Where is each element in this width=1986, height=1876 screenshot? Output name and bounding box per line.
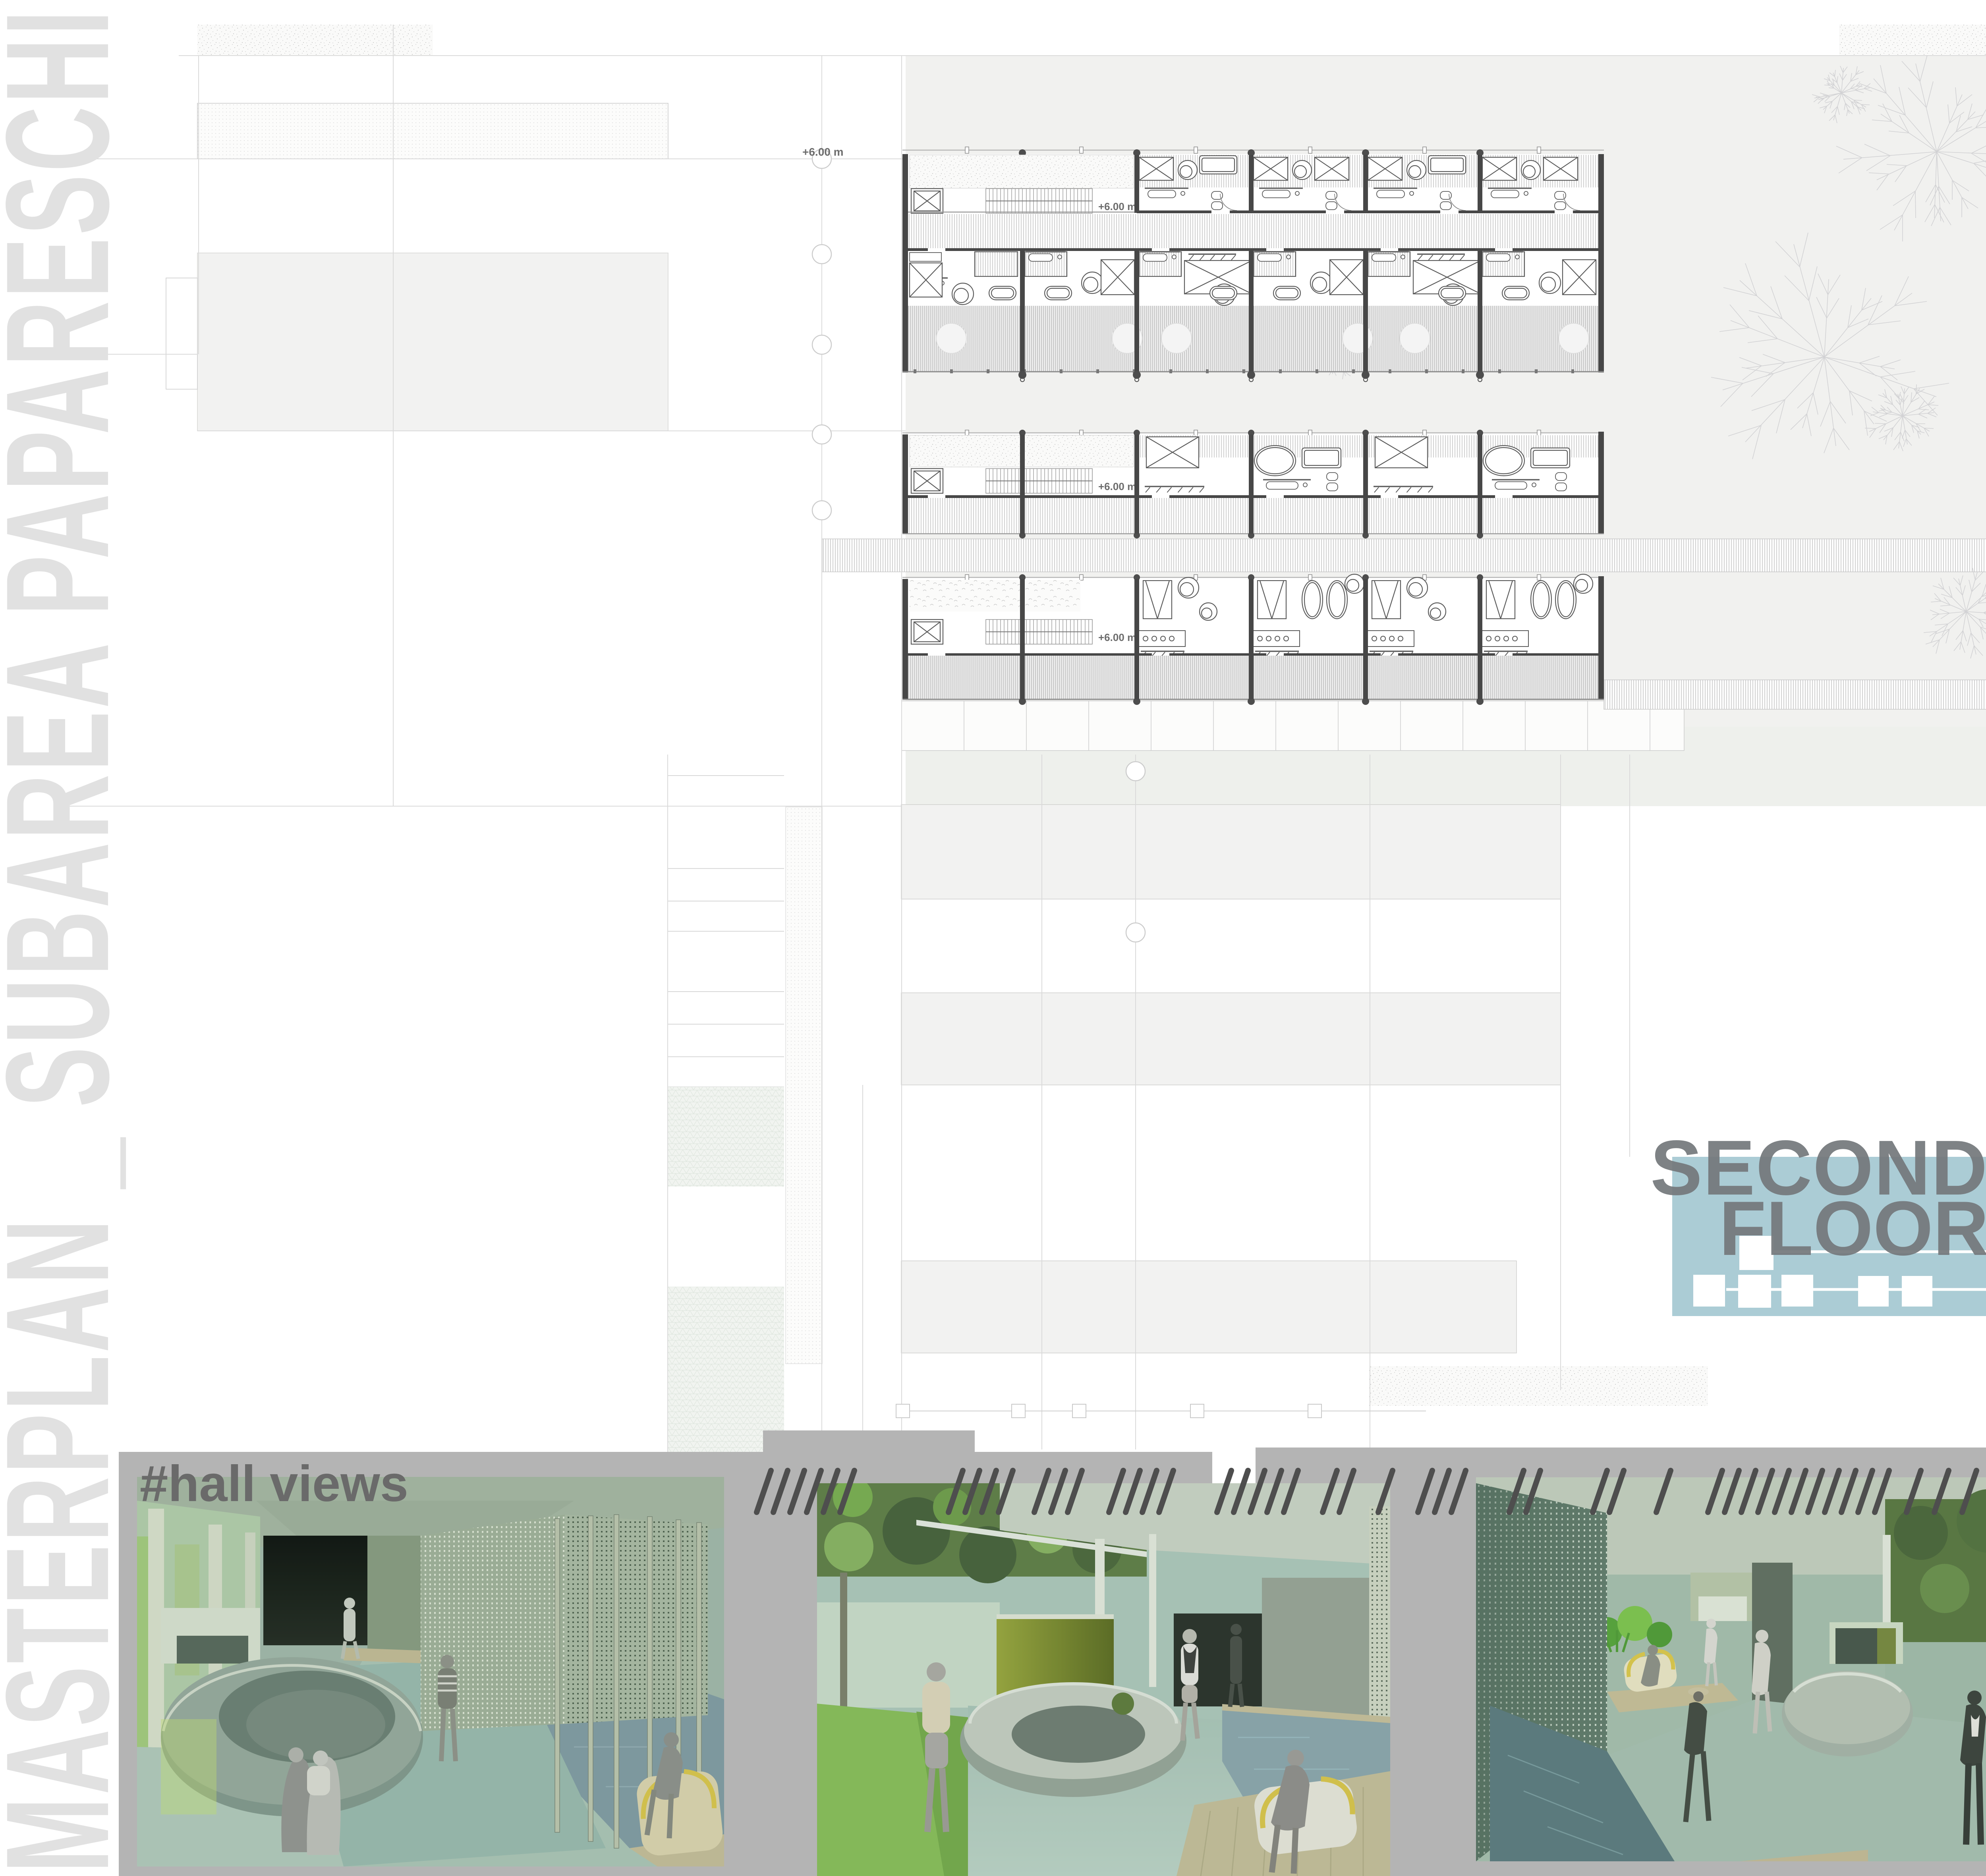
svg-text:#hall views: #hall views [140, 1455, 408, 1512]
svg-text:MASTERPLAN _ SUBAREA PAPARESCH: MASTERPLAN _ SUBAREA PAPARESCHI [0, 8, 139, 1873]
svg-text:FLOORplan: FLOORplan [1719, 1185, 1986, 1272]
